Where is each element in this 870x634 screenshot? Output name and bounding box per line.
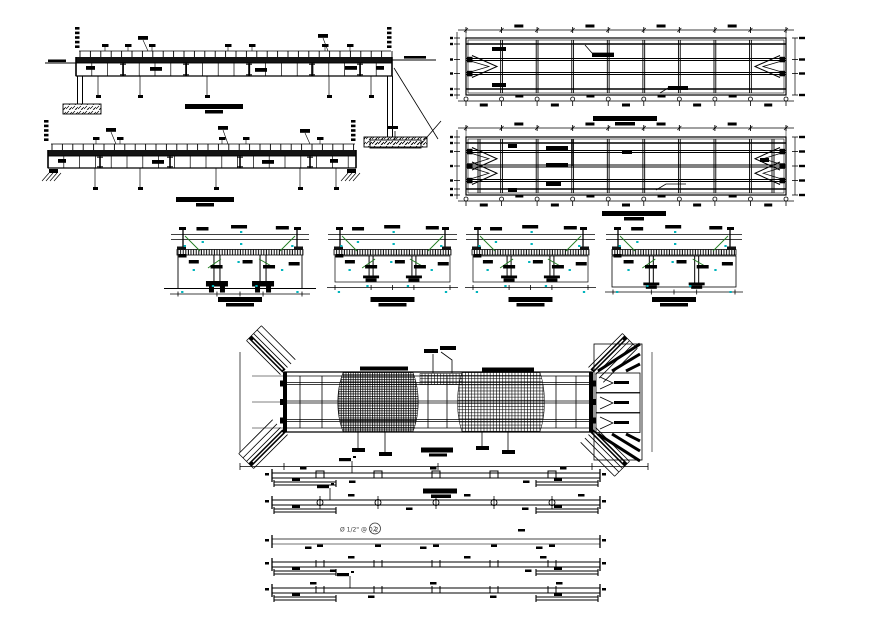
cross-section-4 — [605, 225, 743, 307]
rebar-note: Ø 1/2" @ 0.2 2 — [340, 523, 381, 534]
foundation-reinforcement-plan — [239, 326, 652, 476]
bridge-elevation-view-1 — [45, 27, 438, 147]
cross-section-3 — [465, 225, 596, 307]
cross-section-2 — [327, 225, 458, 307]
rebar-callout-number: 2 — [373, 526, 377, 533]
cross-section-1 — [164, 225, 316, 307]
deck-framing-plan-1 — [450, 25, 805, 126]
deck-framing-plan-2 — [450, 123, 805, 221]
cad-drawing-svg: Ø 1/2" @ 0.2 2 — [0, 0, 870, 634]
cad-drawing-canvas: Ø 1/2" @ 0.2 2 — [0, 0, 870, 634]
bridge-elevation-view-2 — [42, 120, 441, 207]
rebar-detail-rows — [265, 456, 606, 602]
